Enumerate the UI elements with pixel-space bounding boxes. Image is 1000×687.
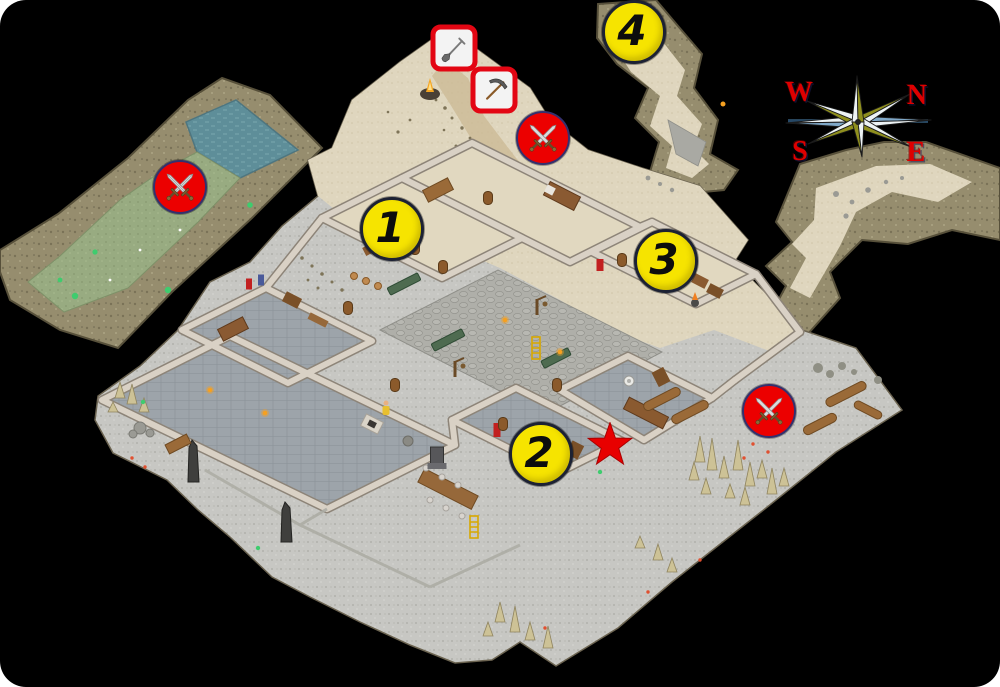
- red-flag: [246, 279, 252, 290]
- marker-number: 2: [524, 432, 553, 474]
- map-marker-2[interactable]: 2: [509, 422, 573, 486]
- battle-marker-2[interactable]: [516, 111, 570, 165]
- pickaxe-marker[interactable]: [471, 67, 518, 114]
- battle-marker-3[interactable]: [742, 384, 796, 438]
- compass-label-e: E: [907, 137, 926, 169]
- shovel-icon: [437, 31, 471, 65]
- map-marker-1[interactable]: 1: [360, 197, 424, 261]
- wall-banner: [597, 259, 604, 271]
- compass-label-w: W: [785, 77, 813, 109]
- star-marker[interactable]: [586, 422, 634, 468]
- marker-number: 1: [375, 207, 404, 249]
- obelisk-statue: [188, 440, 199, 482]
- blue-flag: [258, 275, 264, 286]
- crossed-swords-icon: [157, 164, 203, 210]
- pickaxe-icon: [477, 73, 511, 107]
- villager: [384, 401, 389, 406]
- dungeon-map: 1 2 3 4: [0, 0, 1000, 687]
- crossed-swords-icon: [746, 388, 792, 434]
- star-icon: [586, 422, 634, 468]
- map-marker-4[interactable]: 4: [602, 0, 666, 64]
- compass-label-s: S: [792, 136, 808, 168]
- compass-label-n: N: [907, 80, 927, 112]
- marker-number: 3: [649, 239, 678, 281]
- brazier: [691, 299, 699, 307]
- battle-marker-1[interactable]: [153, 160, 207, 214]
- crossed-swords-icon: [520, 115, 566, 161]
- canyon-east: [766, 142, 1000, 336]
- obelisk-statue: [281, 502, 292, 542]
- map-marker-3[interactable]: 3: [634, 229, 698, 293]
- torch-icon: [721, 102, 726, 107]
- monument: [431, 447, 444, 465]
- shovel-marker[interactable]: [431, 25, 478, 72]
- marker-number: 4: [617, 10, 646, 52]
